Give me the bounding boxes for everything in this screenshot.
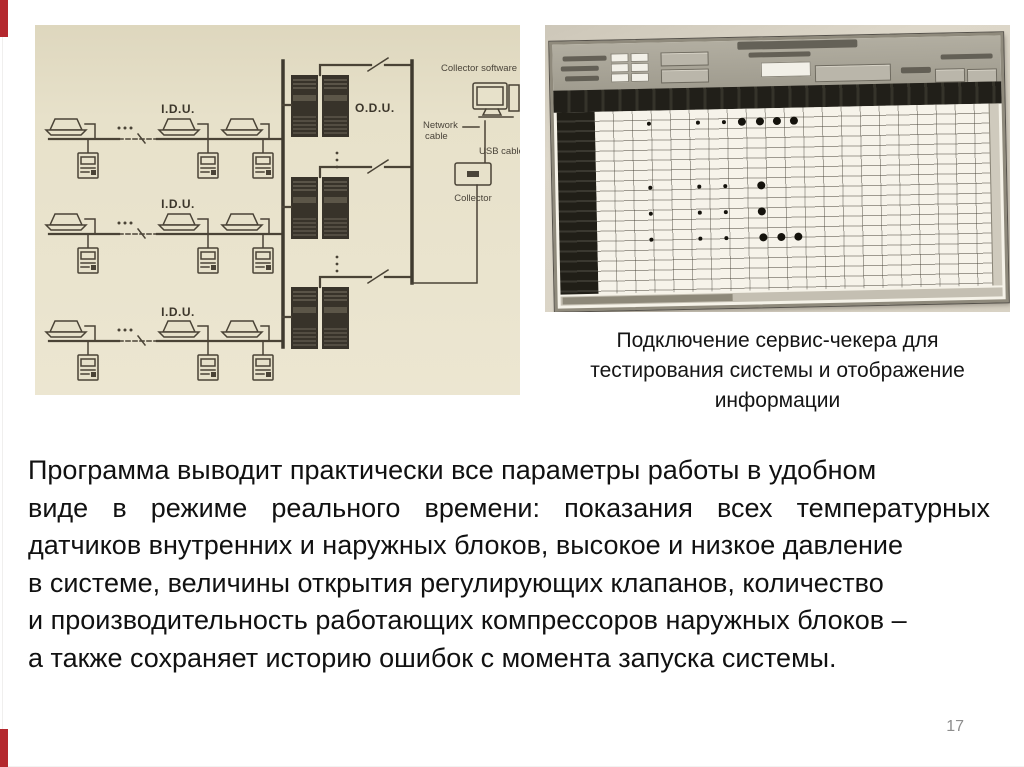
wall-controller-icon	[198, 248, 218, 273]
caption-line: Подключение сервис-чекера для	[545, 326, 1010, 356]
idu-label: I.D.U.	[161, 197, 195, 211]
toolbar-button	[935, 68, 965, 83]
page-number: 17	[946, 718, 964, 736]
indicator-dot	[756, 117, 764, 125]
indicator-dot	[648, 186, 652, 190]
photo-caption: Подключение сервис-чекера для тестирован…	[545, 326, 1010, 416]
value-box	[610, 53, 628, 62]
caption-line: тестирования системы и отображение	[545, 356, 1010, 386]
indicator-dot	[794, 233, 802, 241]
scrollbar-thumb	[563, 294, 733, 305]
input-box	[761, 61, 811, 77]
wall-controller-icon	[78, 355, 98, 380]
wall-controller-icon	[78, 248, 98, 273]
indicator-dot	[649, 212, 653, 216]
photo-paper	[35, 25, 520, 395]
value-box	[611, 63, 629, 72]
network-cable-label: cable	[425, 131, 448, 142]
row-label-column	[557, 112, 599, 295]
indicator-dot	[649, 238, 653, 242]
title-blur	[737, 39, 857, 50]
indicator-dot	[722, 120, 726, 124]
label-blur	[901, 67, 931, 74]
indicator-dot	[698, 237, 702, 241]
value-box	[611, 73, 629, 82]
network-cable-label: Network	[423, 120, 458, 131]
body-text-line: виде в режиме реального времени: показан…	[28, 490, 990, 528]
value-box	[631, 73, 649, 82]
slide-edge-line	[2, 0, 3, 767]
collector-software-label: Collector software	[441, 63, 517, 74]
accent-bar-bottom	[0, 729, 8, 767]
body-text-line: а также сохраняет историю ошибок с момен…	[28, 640, 990, 678]
label-blur	[565, 76, 599, 82]
indicator-dot	[647, 122, 651, 126]
label-blur	[941, 54, 993, 60]
body-paragraph: Программа выводит практически все параме…	[28, 452, 990, 677]
label-blur	[748, 51, 810, 57]
diagram-svg: I.D.U. I.D.U.	[35, 25, 520, 395]
wall-controller-icon	[78, 153, 98, 178]
system-diagram-image: I.D.U. I.D.U.	[35, 25, 520, 395]
wall-controller-icon	[253, 355, 273, 380]
body-text-line: и производительность работающих компресс…	[28, 602, 990, 640]
indicator-dot	[723, 184, 727, 188]
collector-label: Collector	[454, 193, 492, 204]
wall-controller-icon	[253, 153, 273, 178]
toolbar-button	[661, 68, 709, 83]
indicator-dot	[724, 236, 728, 240]
wall-controller-icon	[253, 248, 273, 273]
accent-bar-top	[0, 0, 8, 37]
wall-controller-icon	[198, 355, 218, 380]
toolbar-button	[815, 64, 891, 83]
service-checker-screen	[549, 32, 1009, 311]
label-blur	[563, 56, 607, 62]
idu-label: I.D.U.	[161, 305, 195, 319]
toolbar-button	[660, 51, 708, 66]
indicator-dot	[696, 121, 700, 125]
value-box	[630, 53, 648, 62]
body-text-line: датчиков внутренних и наружных блоков, в…	[28, 527, 990, 565]
caption-line: информации	[545, 386, 1010, 416]
presentation-slide: I.D.U. I.D.U.	[0, 0, 1024, 767]
body-text-line: в системе, величины открытия регулирующи…	[28, 565, 990, 603]
body-text-line: Программа выводит практически все параме…	[28, 452, 990, 490]
odu-label: O.D.U.	[355, 101, 395, 115]
label-blur	[561, 66, 599, 72]
collector-box-icon	[455, 163, 491, 185]
wall-controller-icon	[198, 153, 218, 178]
indicator-dot	[724, 210, 728, 214]
data-grid	[595, 104, 994, 294]
indicator-dot	[698, 211, 702, 215]
service-checker-photo	[545, 25, 1010, 312]
idu-label: I.D.U.	[161, 102, 195, 116]
value-box	[631, 63, 649, 72]
indicator-dot	[697, 185, 701, 189]
